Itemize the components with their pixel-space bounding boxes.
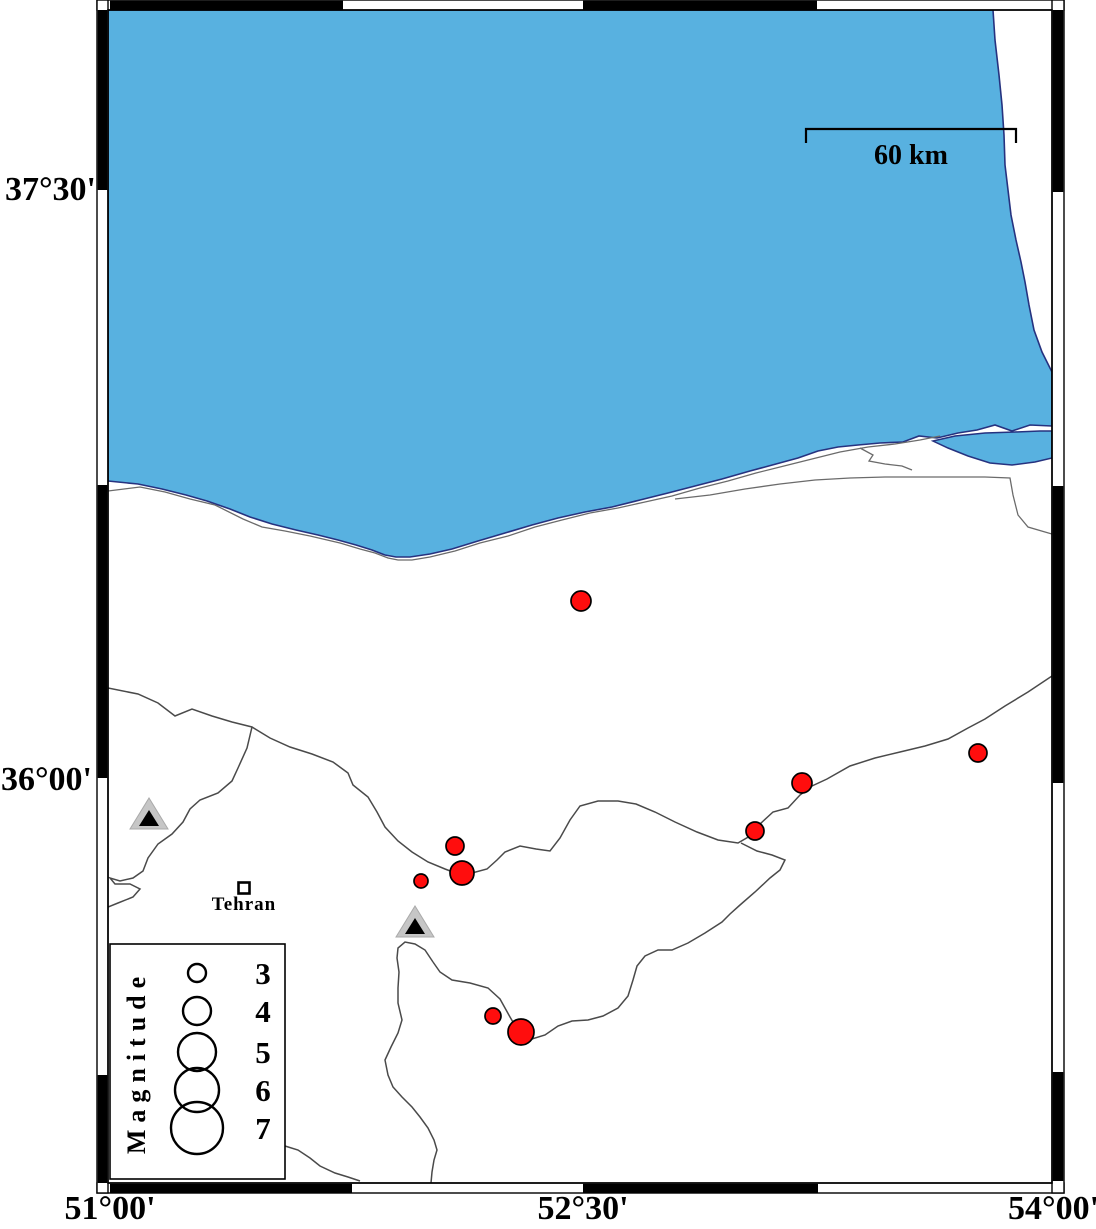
legend-corner-squiggle bbox=[285, 1146, 360, 1181]
frame-tick-right-3 bbox=[1053, 1072, 1064, 1181]
legend-label-7: 7 bbox=[238, 1111, 288, 1147]
earthquake-marker bbox=[792, 773, 812, 793]
lon-label-51-00: 51°00' bbox=[30, 1190, 190, 1228]
legend-label-4: 4 bbox=[238, 994, 288, 1030]
city-square-marker bbox=[239, 883, 250, 894]
alborz-boundary-line bbox=[108, 676, 1052, 874]
map-figure: 37°30' 36°00' 51°00' 52°30' 54°00' 60 km… bbox=[0, 0, 1096, 1229]
spit-boundary-line bbox=[675, 477, 1052, 534]
earthquake-marker bbox=[571, 591, 591, 611]
legend-label-5: 5 bbox=[238, 1035, 288, 1071]
lon-label-54-00: 54°00' bbox=[972, 1190, 1096, 1228]
earthquake-marker bbox=[508, 1019, 534, 1045]
earthquake-marker bbox=[450, 861, 474, 885]
lon-label-52-30: 52°30' bbox=[503, 1190, 663, 1228]
legend-title: Magnitude bbox=[122, 942, 152, 1182]
earthquake-marker-group bbox=[414, 591, 987, 1045]
volcano-marker-group bbox=[130, 798, 434, 937]
southeast-branch-line bbox=[433, 843, 785, 1039]
earthquake-marker bbox=[485, 1008, 501, 1024]
city-marker-group bbox=[239, 883, 250, 894]
caspian-sea bbox=[108, 10, 1052, 557]
frame-tick-right-1 bbox=[1053, 10, 1064, 192]
frame-tick-top-1 bbox=[110, 1, 343, 10]
scale-bar-label: 60 km bbox=[831, 140, 991, 172]
earthquake-marker bbox=[969, 744, 987, 762]
earthquake-marker bbox=[414, 874, 428, 888]
western-loop-line bbox=[108, 727, 252, 907]
frame-tick-left-1 bbox=[98, 10, 108, 190]
lagoon-south-squiggle bbox=[860, 448, 912, 470]
city-label: Tehran bbox=[164, 894, 324, 916]
frame-tick-top-2 bbox=[583, 1, 817, 10]
earthquake-marker bbox=[746, 822, 764, 840]
legend-label-3: 3 bbox=[238, 956, 288, 992]
map-canvas bbox=[0, 0, 1096, 1229]
earthquake-marker bbox=[446, 837, 464, 855]
lat-label-37-30: 37°30' bbox=[2, 171, 96, 209]
gorgan-bay-lagoon bbox=[933, 431, 1052, 465]
legend-label-6: 6 bbox=[238, 1073, 288, 1109]
southern-valley-line bbox=[385, 942, 437, 1183]
frame-tick-right-2 bbox=[1053, 486, 1064, 783]
frame-tick-left-3 bbox=[98, 1075, 108, 1183]
lat-label-36-00: 36°00' bbox=[0, 761, 92, 799]
sea-layer bbox=[108, 10, 1052, 557]
frame-tick-left-2 bbox=[98, 485, 108, 778]
